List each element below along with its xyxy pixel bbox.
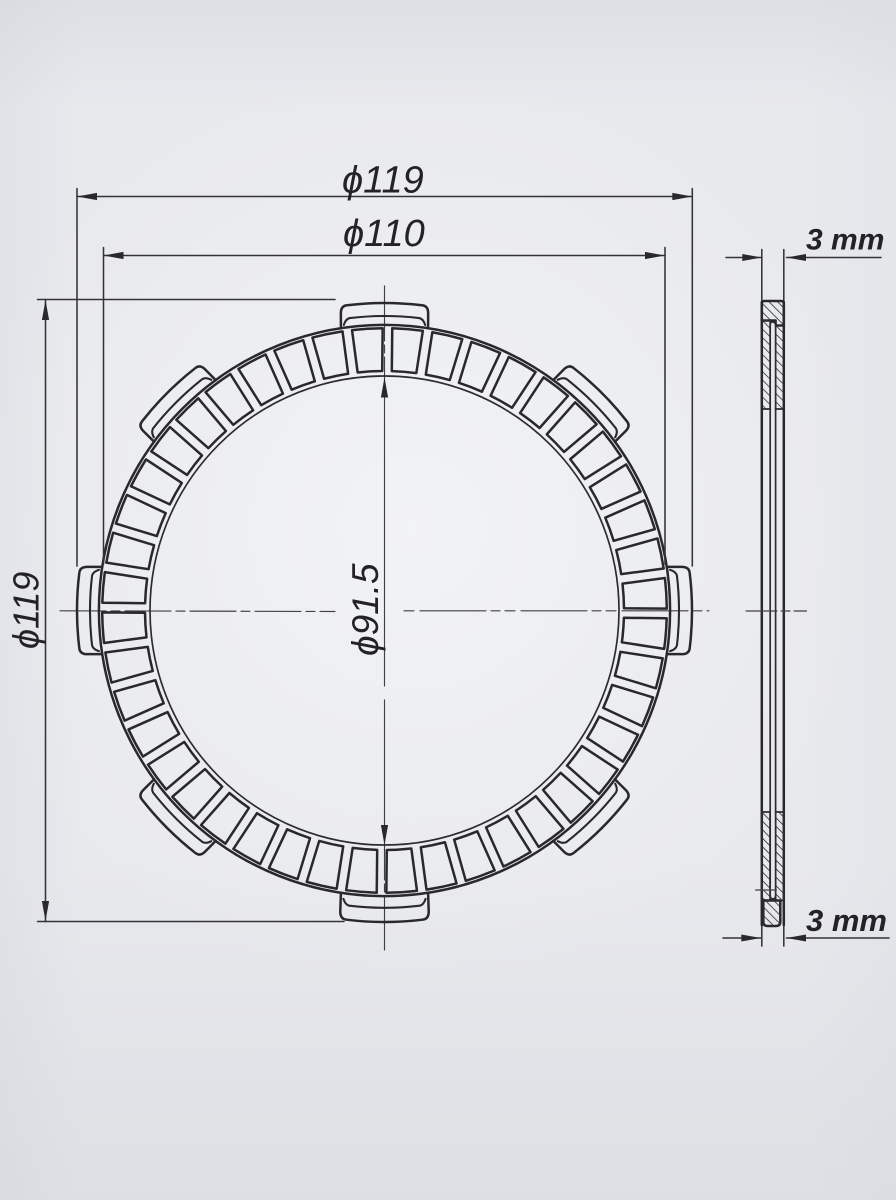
svg-text:ϕ119: ϕ119	[342, 160, 424, 202]
svg-text:3 mm: 3 mm	[806, 903, 887, 938]
svg-text:ϕ119: ϕ119	[6, 572, 47, 649]
svg-text:3 mm: 3 mm	[806, 224, 884, 257]
svg-text:ϕ110: ϕ110	[343, 213, 425, 255]
svg-text:ϕ91.5: ϕ91.5	[345, 563, 386, 656]
